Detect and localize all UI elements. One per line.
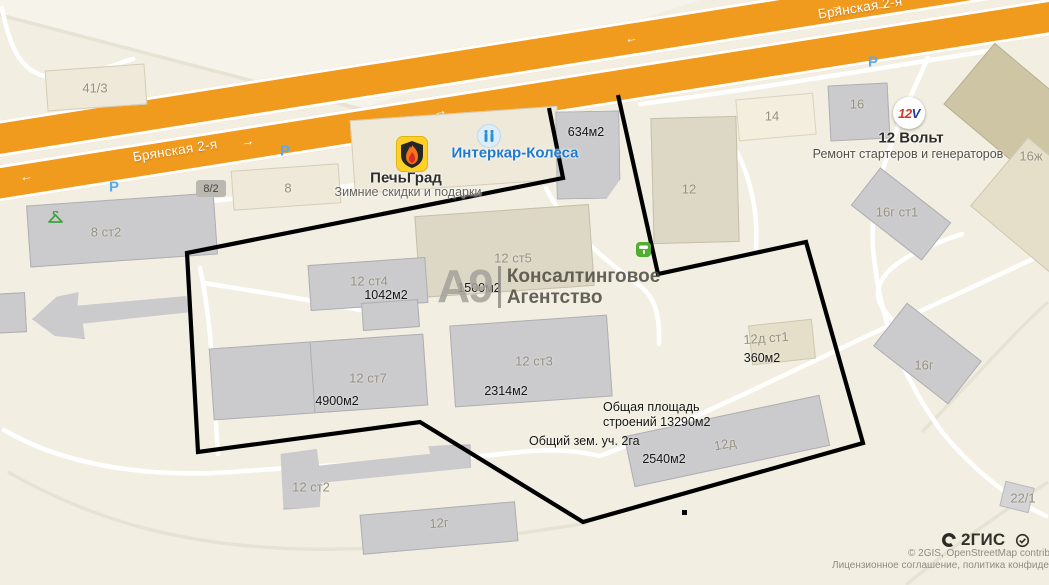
traffic-arrow-icon: ← (623, 29, 638, 46)
consulting-name-line2: Агентство (507, 287, 660, 308)
area-annotation: 2314м2 (484, 384, 527, 398)
parking-marker[interactable]: Р (280, 143, 290, 160)
building-label: 12 ст2 (292, 480, 330, 495)
area-annotation: 1042м2 (364, 288, 407, 302)
2gis-brand-text: 2ГИС (961, 530, 1005, 550)
2gis-logo[interactable]: 2ГИС (941, 530, 1030, 550)
area-annotation: 360м2 (744, 351, 780, 365)
building-12-st4-annex[interactable] (361, 299, 420, 331)
traffic-arrow-icon: ← (19, 168, 34, 185)
building-label: 12 ст3 (515, 354, 553, 369)
license-check-icon[interactable] (1015, 533, 1030, 548)
pechgrad-name[interactable]: ПечьГрад (370, 170, 442, 187)
consulting-watermark: А9 Консалтинговое Агентство (437, 263, 660, 309)
12v-logo[interactable]: 12V (893, 97, 925, 129)
copyright-text: © 2GIS, OpenStreetMap contribut (908, 548, 1049, 559)
traffic-arrow-icon: → (240, 133, 255, 150)
pechgrad-tagline: Зимние скидки и подарки (335, 185, 482, 199)
map-canvas[interactable]: Брянская 2-я Брянская 2-я ← → → ← → → 41… (0, 0, 1049, 585)
area-annotation: 634м2 (568, 125, 604, 139)
boundary-dot (682, 510, 687, 515)
building-label: 14 (765, 109, 779, 124)
building-label: 12 ст7 (349, 371, 387, 386)
12v-logo-number: 12 (898, 106, 911, 121)
building-label: 41/3 (82, 81, 107, 96)
area-annotation: 2540м2 (642, 452, 685, 466)
consulting-name-line1: Консалтинговое (507, 266, 660, 287)
building-label: 12 (682, 182, 696, 197)
12v-logo-letter: V (912, 106, 920, 121)
building-label: 8 ст2 (91, 225, 122, 240)
traffic-arrow-icon: → (829, 0, 844, 14)
building-label: 16 (850, 97, 864, 112)
building-label: 22/1 (1010, 491, 1035, 506)
total-area-note: Общая площадь строений 13290м2 (603, 400, 710, 430)
land-area-note: Общий зем. уч. 2га (529, 434, 640, 449)
parking-marker[interactable]: Р (868, 54, 878, 71)
watermark-divider (498, 266, 501, 308)
building-label: 12г (429, 515, 449, 531)
building-label: 12д ст1 (743, 329, 789, 347)
building-chevron[interactable] (31, 287, 191, 340)
parking-marker[interactable]: Р (109, 179, 119, 196)
clothes-hanger-icon[interactable] (47, 211, 64, 232)
12volt-tagline: Ремонт стартеров и генераторов (813, 147, 1004, 161)
building-label: 16г (914, 358, 933, 373)
building-16g[interactable] (873, 303, 982, 405)
address-badge: 8/2 (196, 180, 226, 197)
building-label: 8 (284, 181, 291, 196)
license-link[interactable]: Лицензионное соглашение, политика конфид… (832, 560, 1049, 571)
building-label: 8/2 (203, 183, 218, 195)
total-area-line1: Общая площадь (603, 400, 710, 415)
intercar-name[interactable]: Интеркар-Колеса (452, 145, 579, 162)
total-area-line2: строений 13290м2 (603, 415, 710, 430)
2gis-ring-icon (941, 532, 957, 548)
building-label: 16ж (1019, 149, 1042, 164)
area-annotation: 4900м2 (315, 394, 358, 408)
building-label: 12 ст4 (350, 274, 388, 289)
building-label: 16г ст1 (876, 205, 919, 220)
building-12[interactable] (650, 116, 739, 244)
12volt-name[interactable]: 12 Вольт (878, 130, 943, 147)
pechgrad-logo[interactable] (396, 136, 428, 172)
a9-logo: А9 (437, 263, 492, 309)
building-12-st2[interactable] (278, 444, 471, 509)
traffic-arrow-icon: → (874, 0, 889, 14)
paint-roller-icon[interactable] (636, 242, 651, 257)
building-left-edge[interactable] (0, 292, 27, 334)
